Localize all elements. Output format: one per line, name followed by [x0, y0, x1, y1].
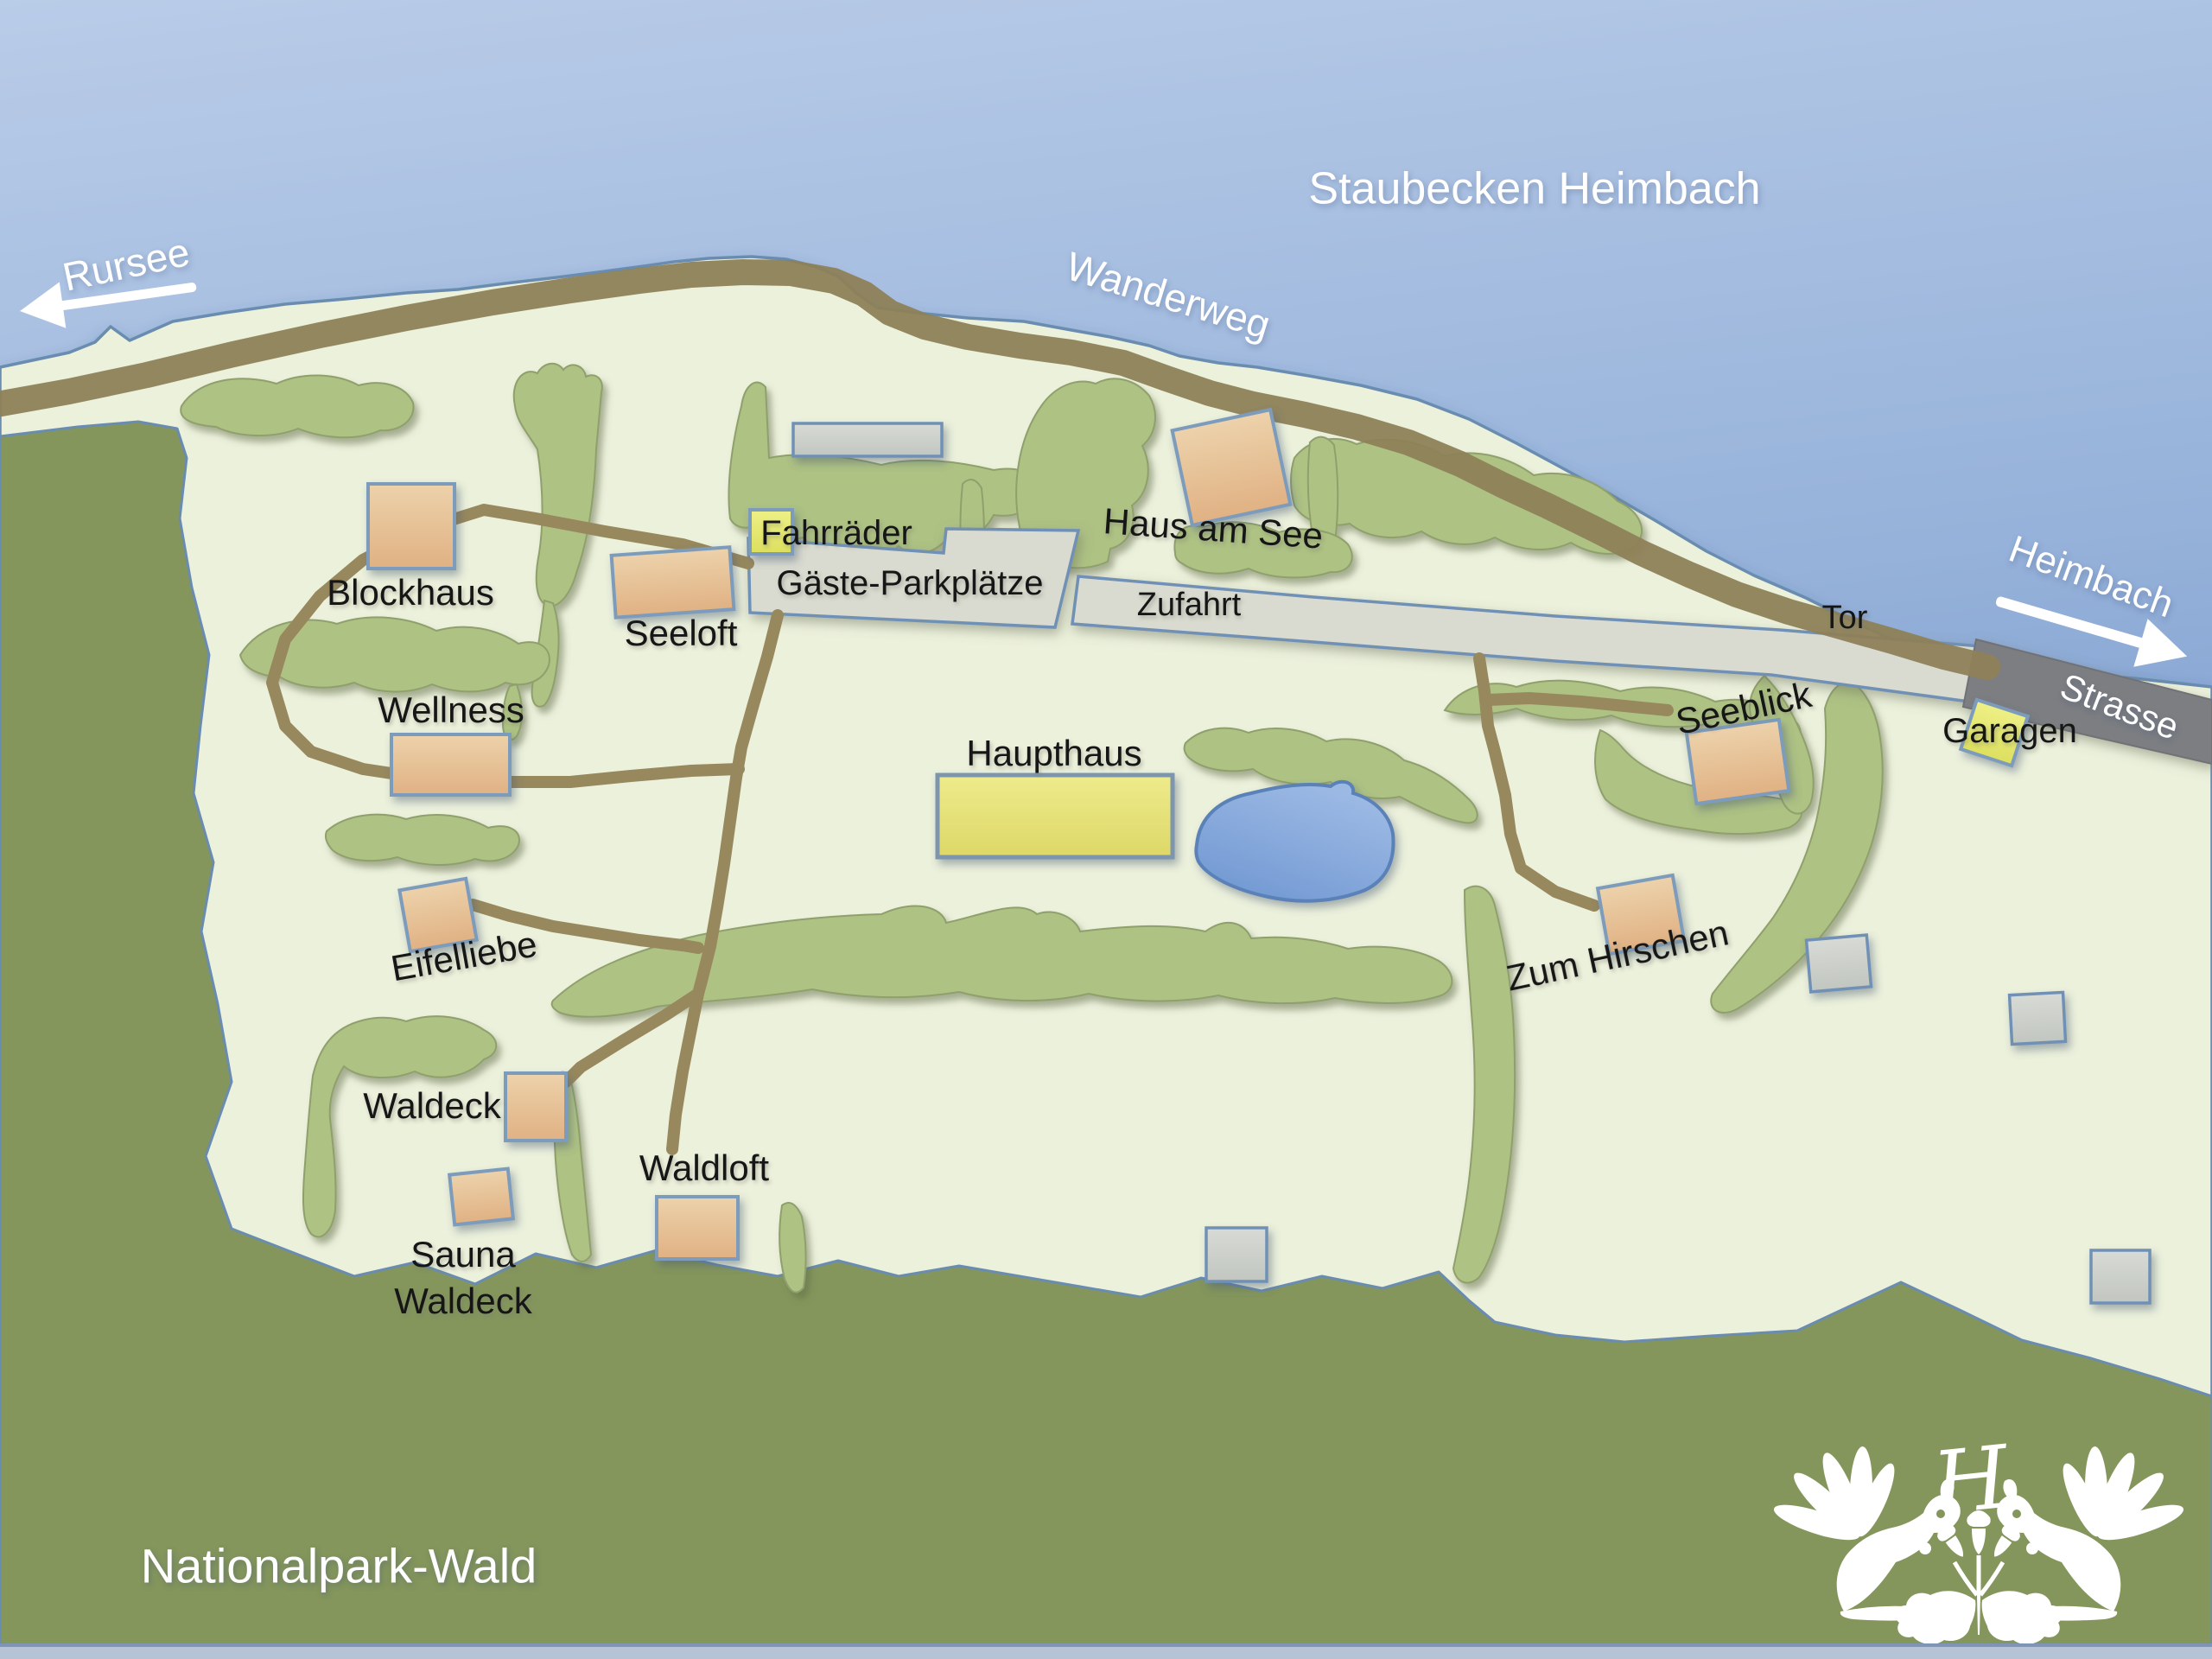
building-label-haupthaus: Haupthaus	[966, 734, 1141, 772]
building-wellness	[391, 734, 510, 795]
building-sauna-waldeck	[449, 1169, 513, 1225]
terrain-canvas: H	[0, 0, 2212, 1659]
building-seeloft	[612, 547, 734, 617]
building-label-sauna-waldeck-line1: Sauna	[410, 1236, 515, 1274]
building-label-seeloft: Seeloft	[625, 614, 738, 652]
map-bottom-border	[0, 1643, 2212, 1659]
gate-label-tor: Tor	[1822, 601, 1868, 636]
building-label-waldeck: Waldeck	[363, 1087, 501, 1125]
building-label-fahrraeder: Fahrräder	[760, 515, 912, 551]
area-label-parking: Gäste-Parkplätze	[776, 565, 1043, 601]
building-label-waldloft: Waldloft	[639, 1149, 769, 1187]
building-unlabeled-gray-4	[1206, 1228, 1267, 1281]
building-unlabeled-gray-top	[793, 423, 942, 456]
building-waldeck	[505, 1073, 566, 1141]
building-unlabeled-gray-3	[2091, 1250, 2150, 1303]
building-unlabeled-gray-2	[2010, 992, 2066, 1044]
building-blockhaus	[368, 484, 454, 569]
building-label-blockhaus: Blockhaus	[327, 574, 494, 612]
building-unlabeled-gray-1	[1807, 935, 1872, 992]
forest-name-label: Nationalpark-Wald	[141, 1541, 537, 1592]
site-map: H	[0, 0, 2212, 1659]
water-name-label: Staubecken Heimbach	[1308, 166, 1760, 213]
building-waldloft	[657, 1197, 738, 1259]
road-label-zufahrt: Zufahrt	[1137, 588, 1241, 623]
building-label-garagen: Garagen	[1942, 713, 2077, 749]
building-haupthaus	[938, 775, 1173, 857]
building-label-sauna-waldeck-line2: Waldeck	[394, 1282, 532, 1320]
building-label-wellness: Wellness	[378, 691, 524, 729]
